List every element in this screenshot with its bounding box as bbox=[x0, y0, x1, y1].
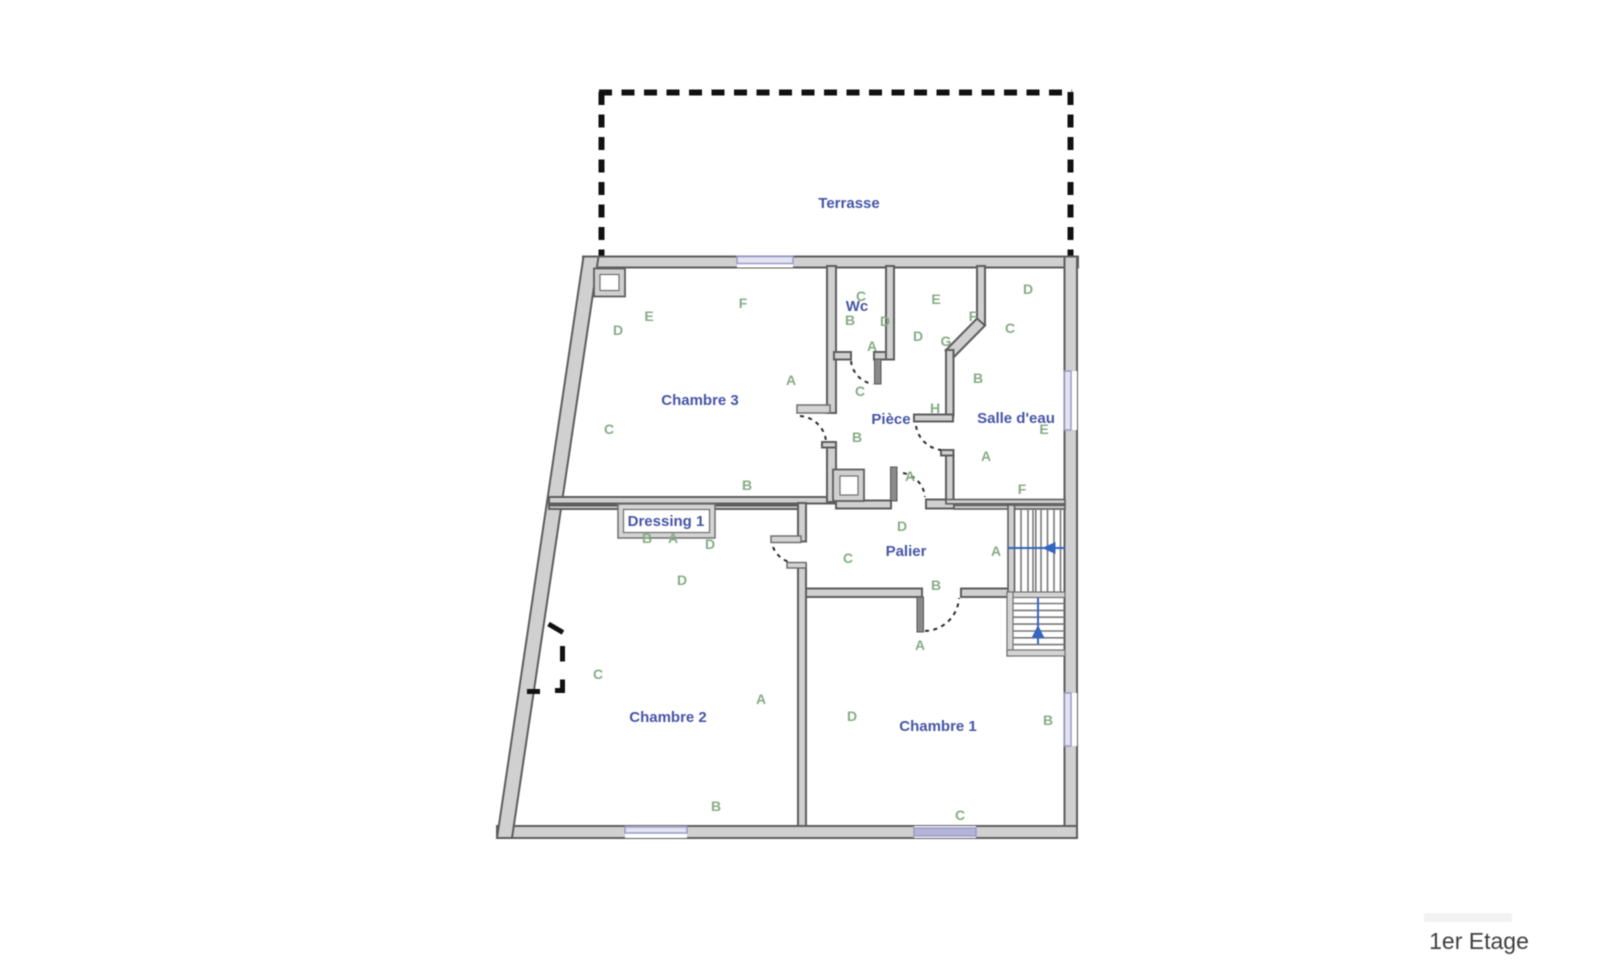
svg-text:E: E bbox=[644, 308, 653, 324]
svg-text:A: A bbox=[991, 543, 1001, 559]
svg-text:F: F bbox=[1018, 481, 1027, 497]
svg-text:C: C bbox=[1005, 320, 1015, 336]
svg-text:F: F bbox=[969, 308, 978, 324]
svg-text:C: C bbox=[856, 288, 866, 304]
svg-text:Chambre 3: Chambre 3 bbox=[661, 392, 739, 409]
svg-text:D: D bbox=[880, 313, 890, 329]
svg-text:A: A bbox=[915, 637, 925, 653]
svg-text:C: C bbox=[855, 383, 865, 399]
svg-text:Palier: Palier bbox=[886, 543, 927, 560]
svg-text:Terrasse: Terrasse bbox=[818, 195, 879, 212]
svg-text:A: A bbox=[981, 448, 991, 464]
svg-text:B: B bbox=[711, 798, 721, 814]
svg-text:C: C bbox=[604, 421, 614, 437]
svg-text:B: B bbox=[642, 530, 652, 546]
svg-text:A: A bbox=[756, 691, 766, 707]
svg-text:F: F bbox=[739, 295, 748, 311]
svg-text:E: E bbox=[1039, 421, 1048, 437]
svg-text:D: D bbox=[1023, 281, 1033, 297]
svg-text:Pièce: Pièce bbox=[871, 411, 910, 428]
svg-text:A: A bbox=[867, 338, 877, 354]
svg-text:G: G bbox=[941, 333, 952, 349]
svg-text:B: B bbox=[742, 477, 752, 493]
svg-text:B: B bbox=[852, 429, 862, 445]
svg-text:C: C bbox=[593, 666, 603, 682]
svg-text:A: A bbox=[905, 468, 915, 484]
svg-text:Dressing 1: Dressing 1 bbox=[628, 513, 705, 530]
svg-text:A: A bbox=[786, 372, 796, 388]
svg-text:B: B bbox=[931, 577, 941, 593]
svg-text:D: D bbox=[613, 322, 623, 338]
svg-text:Chambre 1: Chambre 1 bbox=[899, 718, 977, 735]
svg-text:H: H bbox=[930, 400, 940, 416]
svg-text:D: D bbox=[705, 536, 715, 552]
svg-text:1er Etage: 1er Etage bbox=[1429, 928, 1529, 954]
svg-text:C: C bbox=[955, 807, 965, 823]
svg-text:D: D bbox=[847, 708, 857, 724]
svg-text:D: D bbox=[897, 518, 907, 534]
svg-text:B: B bbox=[1043, 712, 1053, 728]
svg-text:A: A bbox=[668, 530, 678, 546]
svg-text:D: D bbox=[677, 572, 687, 588]
svg-text:B: B bbox=[973, 370, 983, 386]
svg-text:B: B bbox=[845, 312, 855, 328]
svg-text:C: C bbox=[843, 550, 853, 566]
svg-text:Chambre 2: Chambre 2 bbox=[629, 709, 707, 726]
svg-text:D: D bbox=[913, 328, 923, 344]
svg-text:E: E bbox=[931, 291, 940, 307]
